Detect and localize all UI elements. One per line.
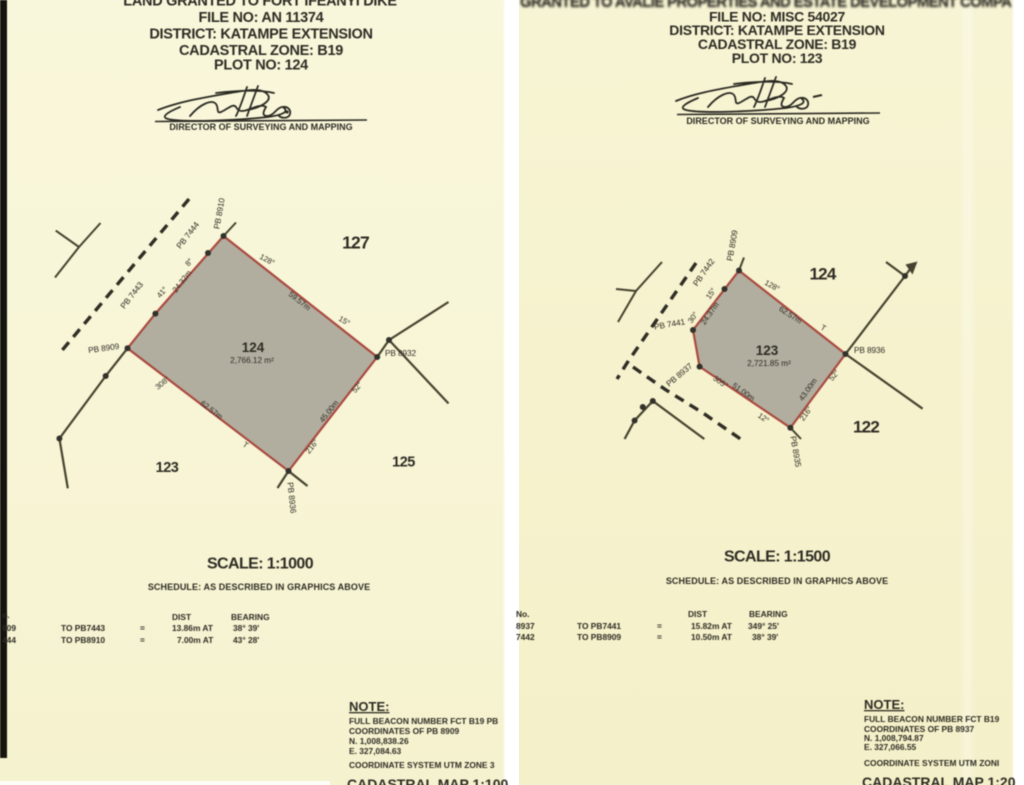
svg-text:2,766.12 m²: 2,766.12 m²	[230, 356, 274, 365]
svg-text:PLOT NO: 123: PLOT NO: 123	[732, 50, 823, 66]
svg-text:PB 7443: PB 7443	[118, 279, 145, 310]
svg-text:COORDINATE SYSTEM UTM ZONI: COORDINATE SYSTEM UTM ZONI	[864, 758, 999, 768]
svg-text:909: 909	[2, 623, 16, 633]
svg-text:COORDINATE SYSTEM UTM ZONE 3: COORDINATE SYSTEM UTM ZONE 3	[349, 760, 495, 770]
svg-text:PB 7442: PB 7442	[691, 256, 717, 288]
svg-text:123: 123	[156, 460, 179, 476]
svg-text:=: =	[657, 632, 662, 642]
svg-text:NOTE:: NOTE:	[864, 697, 904, 712]
svg-text:CADASTRAL MAP 1:100: CADASTRAL MAP 1:100	[347, 776, 509, 785]
svg-text:127: 127	[342, 233, 369, 253]
svg-text:TO PB7443: TO PB7443	[61, 623, 105, 633]
svg-text:10.50m AT: 10.50m AT	[691, 632, 733, 642]
svg-text:COORDINATES OF PB 8909: COORDINATES OF PB 8909	[349, 726, 459, 736]
svg-text:PB 8936: PB 8936	[285, 482, 298, 514]
svg-text:DIST: DIST	[688, 609, 708, 619]
svg-text:TO PB8909: TO PB8909	[577, 632, 621, 642]
svg-text:124: 124	[242, 340, 265, 355]
svg-text:8°: 8°	[183, 257, 195, 268]
svg-text:BEARING: BEARING	[231, 612, 270, 622]
svg-text:124: 124	[810, 265, 837, 284]
svg-text:DISTRICT: KATAMPE EXTENSION: DISTRICT: KATAMPE EXTENSION	[149, 27, 372, 43]
svg-text:FULL BEACON NUMBER FCT B19 PB: FULL BEACON NUMBER FCT B19 PB	[349, 716, 498, 726]
svg-text:BEARING: BEARING	[749, 609, 788, 619]
svg-text:SCHEDULE: AS DESCRIBED IN GRAP: SCHEDULE: AS DESCRIBED IN GRAPHICS ABOVE	[666, 576, 888, 586]
svg-text:123: 123	[756, 343, 779, 358]
svg-text:=: =	[140, 623, 145, 633]
svg-text:13.86m AT: 13.86m AT	[172, 623, 214, 633]
svg-text:2,721.85 m²: 2,721.85 m²	[747, 359, 791, 368]
svg-text:TO PB8910: TO PB8910	[61, 635, 105, 645]
svg-text:7.00m AT: 7.00m AT	[177, 635, 214, 645]
svg-text:PB 8932: PB 8932	[385, 348, 417, 358]
svg-text:T: T	[241, 440, 250, 450]
svg-text:No.: No.	[516, 609, 530, 619]
svg-text:FULL BEACON NUMBER FCT B19: FULL BEACON NUMBER FCT B19	[864, 714, 1000, 724]
svg-text:PB 8936: PB 8936	[854, 345, 886, 355]
svg-text:SCALE: 1:1500: SCALE: 1:1500	[724, 549, 831, 566]
svg-text:LAND GRANTED TO FORT IFEANYI D: LAND GRANTED TO FORT IFEANYI DIKE	[123, 0, 397, 10]
svg-text:349° 25': 349° 25'	[748, 621, 779, 631]
svg-text:122: 122	[853, 418, 879, 437]
svg-text:NOTE:: NOTE:	[349, 699, 389, 714]
svg-text:PB 8909: PB 8909	[724, 229, 739, 262]
svg-text:7442: 7442	[516, 632, 535, 642]
svg-text:T: T	[819, 323, 828, 333]
svg-text:41°: 41°	[155, 285, 169, 300]
svg-text:=: =	[140, 635, 145, 645]
svg-text:15°: 15°	[337, 314, 351, 328]
svg-text:PB 7441: PB 7441	[653, 316, 686, 331]
svg-text:43° 28': 43° 28'	[233, 635, 259, 645]
svg-text:444: 444	[2, 635, 16, 645]
svg-text:PB 8935: PB 8935	[788, 435, 803, 468]
svg-text:SCALE: 1:1000: SCALE: 1:1000	[207, 556, 314, 573]
svg-text:DIST: DIST	[172, 612, 192, 622]
svg-text:PB 8910: PB 8910	[211, 197, 226, 230]
svg-text:PB 8937: PB 8937	[664, 361, 695, 389]
svg-text:125: 125	[392, 455, 415, 471]
svg-text:SCHEDULE: AS DESCRIBED IN GRAP: SCHEDULE: AS DESCRIBED IN GRAPHICS ABOVE	[148, 582, 370, 592]
svg-text:PB 8909: PB 8909	[87, 341, 120, 355]
svg-text:38° 39': 38° 39'	[752, 632, 778, 642]
svg-text:E. 327,066.55: E. 327,066.55	[864, 742, 916, 752]
svg-text:E. 327,084.63: E. 327,084.63	[349, 746, 401, 756]
svg-text:=: =	[657, 621, 662, 631]
svg-text:8937: 8937	[516, 621, 535, 631]
svg-text:N. 1,008,838.26: N. 1,008,838.26	[349, 736, 409, 746]
svg-text:DIRECTOR OF SURVEYING AND MAPP: DIRECTOR OF SURVEYING AND MAPPING	[169, 122, 352, 132]
svg-text:15.82m AT: 15.82m AT	[691, 621, 733, 631]
svg-text:38° 39': 38° 39'	[233, 623, 259, 633]
svg-text:FILE NO: AN 11374: FILE NO: AN 11374	[199, 10, 324, 26]
svg-text:CADASTRAL MAP 1:20: CADASTRAL MAP 1:20	[862, 774, 1016, 785]
svg-text:TO PB7441: TO PB7441	[577, 621, 621, 631]
svg-text:PB 7444: PB 7444	[174, 219, 201, 250]
svg-text:PLOT NO: 124: PLOT NO: 124	[214, 58, 308, 74]
svg-text:DIRECTOR OF SURVEYING AND MAPP: DIRECTOR OF SURVEYING AND MAPPING	[686, 116, 869, 126]
svg-text:o.: o.	[2, 610, 9, 620]
